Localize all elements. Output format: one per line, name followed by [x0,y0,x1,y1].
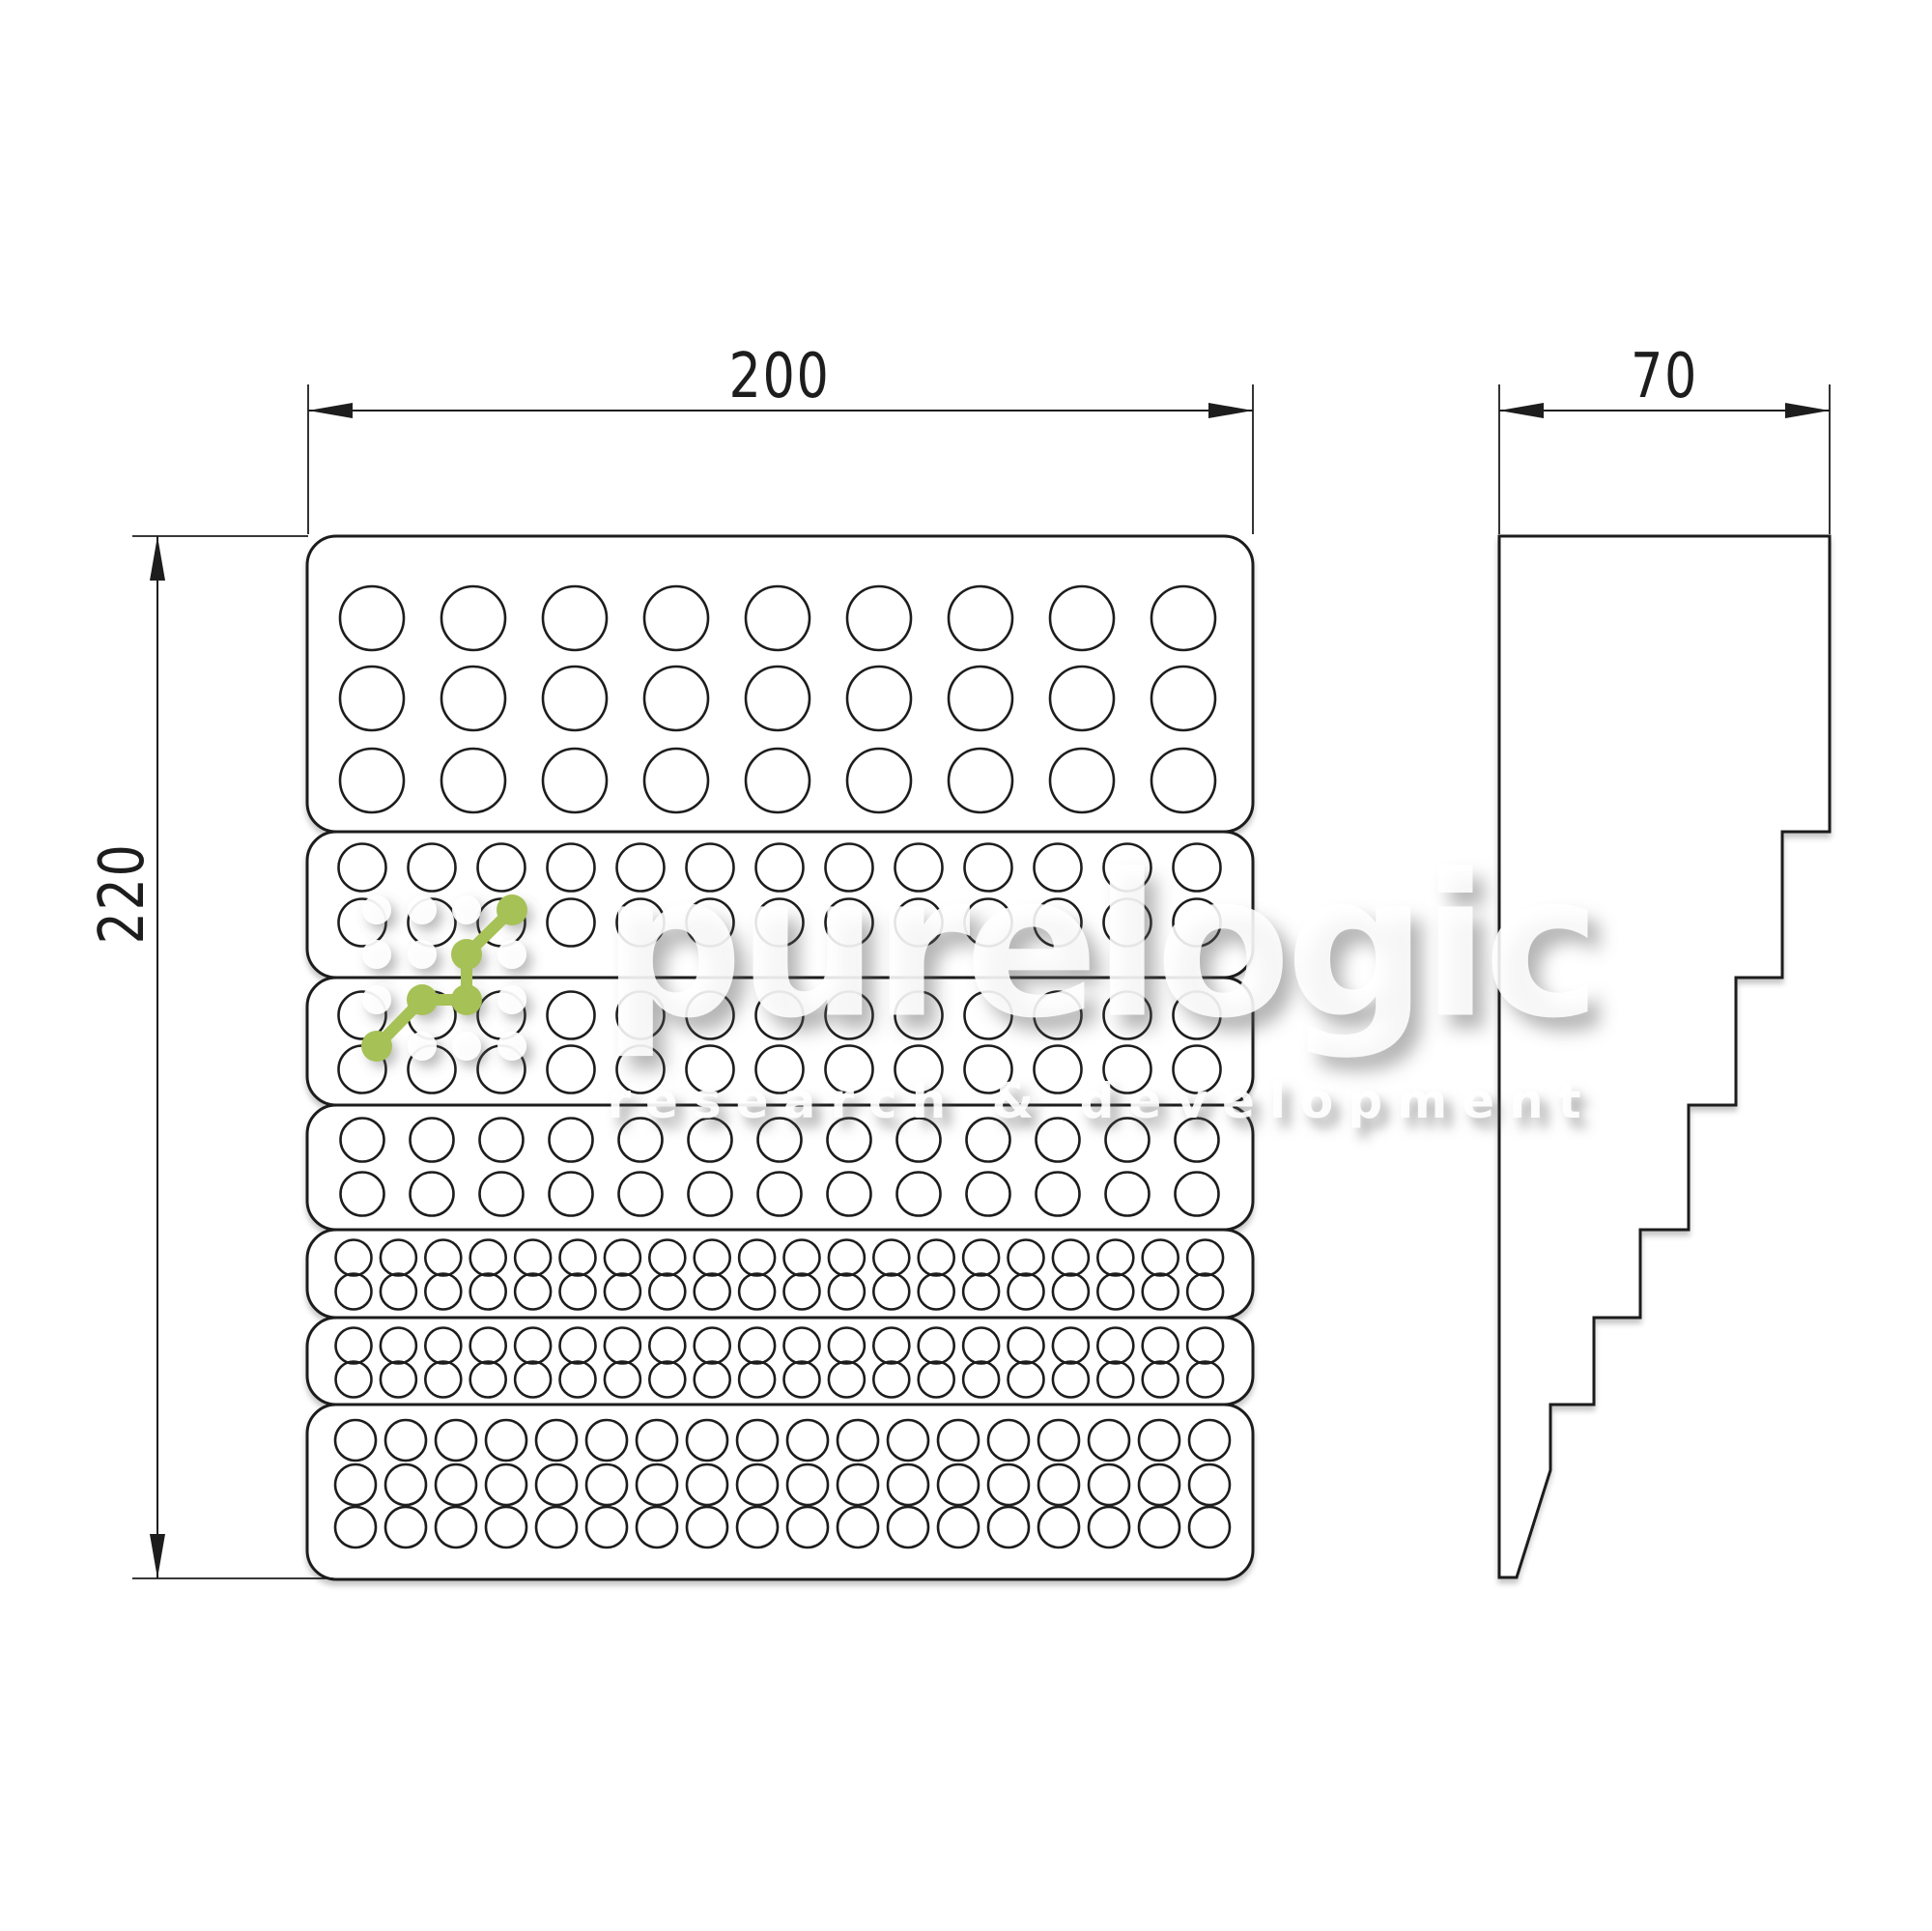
dimension-front-height-label: 220 [87,842,158,944]
technical-drawing-canvas: purelogic research & development 200 70 … [0,0,1932,1931]
green-node-dot [361,1031,392,1062]
white-dot [452,895,481,924]
green-node-dot [451,939,482,970]
dimension-front-width-label: 200 [728,341,830,412]
white-dot [497,940,526,969]
green-node-dot [451,984,482,1015]
green-node-dot [497,895,527,925]
white-dot [408,1032,437,1061]
green-node-dot [407,984,438,1015]
dimension-side-width-label: 70 [1631,341,1698,412]
white-dot [362,985,391,1014]
white-dot [408,895,437,924]
watermark-dot-logo-icon [0,0,1932,1931]
white-dot [497,1032,526,1061]
white-dot [362,895,391,924]
white-dot [362,940,391,969]
white-dot [408,940,437,969]
white-dot [497,985,526,1014]
white-dot [452,1032,481,1061]
